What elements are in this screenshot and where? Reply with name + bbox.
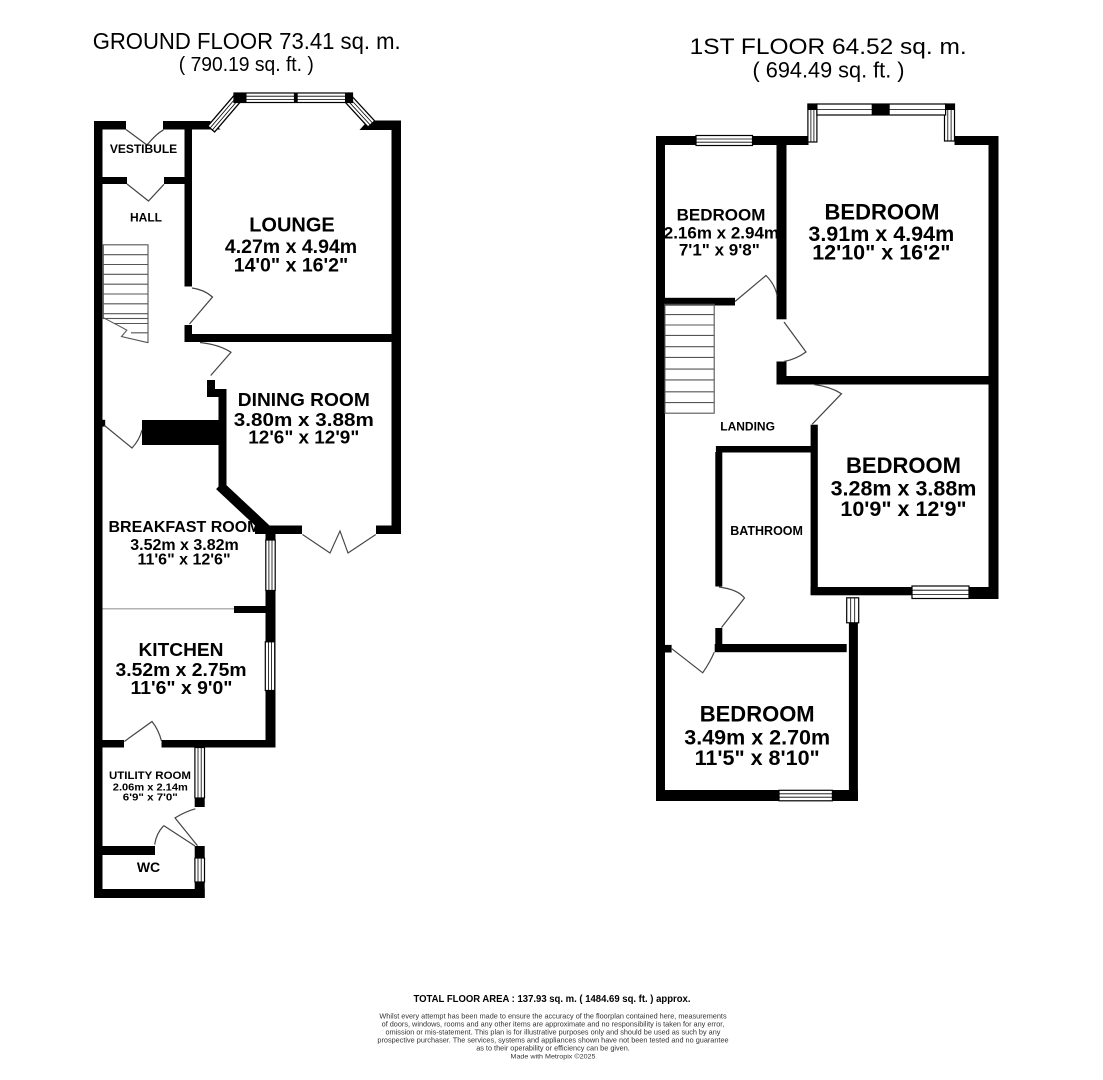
svg-text:BEDROOM: BEDROOM [846, 453, 961, 478]
svg-text:12'10" x 16'2": 12'10" x 16'2" [812, 241, 950, 265]
svg-text:12'6" x 12'9": 12'6" x 12'9" [248, 428, 359, 448]
svg-text:BREAKFAST ROOM: BREAKFAST ROOM [109, 519, 261, 536]
svg-text:HALL: HALL [130, 210, 162, 224]
svg-text:as to their operability or eff: as to their operability or efficiency ca… [476, 1044, 630, 1053]
svg-text:TOTAL FLOOR AREA : 137.93 sq.: TOTAL FLOOR AREA : 137.93 sq. m. ( 1484.… [414, 994, 691, 1005]
svg-text:KITCHEN: KITCHEN [139, 639, 224, 660]
svg-text:( 694.49 sq. ft. ): ( 694.49 sq. ft. ) [753, 58, 905, 83]
svg-text:VESTIBULE: VESTIBULE [110, 142, 177, 156]
svg-text:3.52m x 2.75m: 3.52m x 2.75m [116, 660, 247, 680]
svg-text:( 790.19 sq. ft. ): ( 790.19 sq. ft. ) [179, 54, 314, 76]
svg-text:6'9" x 7'0": 6'9" x 7'0" [123, 793, 178, 804]
svg-text:11'5" x 8'10": 11'5" x 8'10" [695, 746, 820, 770]
svg-text:BATHROOM: BATHROOM [730, 524, 803, 538]
svg-text:GROUND FLOOR 73.41 sq. m.: GROUND FLOOR 73.41 sq. m. [93, 28, 401, 54]
svg-text:DINING ROOM: DINING ROOM [238, 390, 370, 410]
svg-text:11'6" x 12'6": 11'6" x 12'6" [137, 552, 230, 569]
svg-text:BEDROOM: BEDROOM [677, 205, 766, 224]
svg-text:10'9" x 12'9": 10'9" x 12'9" [840, 497, 966, 521]
svg-text:7'1" x 9'8": 7'1" x 9'8" [679, 240, 760, 259]
svg-text:LOUNGE: LOUNGE [249, 215, 335, 237]
svg-text:BEDROOM: BEDROOM [825, 200, 940, 225]
svg-text:1ST FLOOR 64.52 sq. m.: 1ST FLOOR 64.52 sq. m. [690, 34, 967, 59]
svg-text:14'0" x 16'2": 14'0" x 16'2" [234, 255, 349, 277]
svg-text:UTILITY ROOM: UTILITY ROOM [109, 770, 191, 782]
svg-text:WC: WC [137, 859, 160, 875]
svg-text:BEDROOM: BEDROOM [700, 701, 815, 726]
svg-text:LANDING: LANDING [720, 420, 775, 434]
svg-text:11'6" x 9'0": 11'6" x 9'0" [131, 678, 233, 698]
svg-text:Made with Metropix ©2025: Made with Metropix ©2025 [511, 1053, 597, 1061]
